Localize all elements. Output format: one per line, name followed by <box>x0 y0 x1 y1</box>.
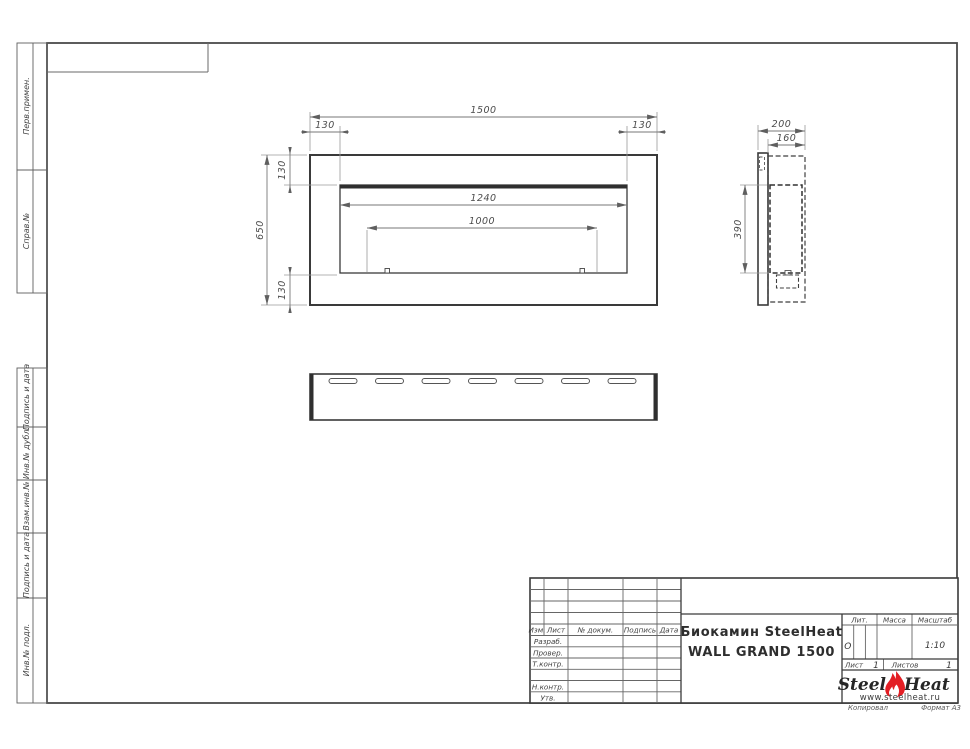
col-date: Дата <box>659 626 679 635</box>
col-sign: Подпись <box>624 626 656 635</box>
dim-text-200: 200 <box>772 119 792 130</box>
dim-text-650: 650 <box>255 220 266 240</box>
logo-word-heat: Heat <box>903 675 950 695</box>
row-tcontrol: Т.контр. <box>532 660 563 669</box>
extension-lines-side <box>740 125 805 273</box>
format-label: Формат А3 <box>921 704 961 712</box>
dim-text-130-left: 130 <box>315 120 335 131</box>
dim-text-130-top: 130 <box>277 160 288 180</box>
sheets-total: 1 <box>946 661 952 671</box>
side-view-firebox-hidden <box>770 185 802 273</box>
mass-label: Масса <box>883 616 906 625</box>
front-view-outline <box>310 155 657 305</box>
dim-text-1240: 1240 <box>470 193 496 204</box>
side-view <box>758 153 805 305</box>
side-view-front-frame <box>758 153 768 305</box>
margin-label-vzam-inv: Взам.инв.№ <box>22 481 31 530</box>
lit-label: Лит. <box>850 616 868 625</box>
drawing-sheet: Перв.примен. Справ.№ Подпись и дата Инв.… <box>0 0 970 749</box>
copied-label: Копировал <box>848 704 889 712</box>
burner-mount-left <box>385 269 390 274</box>
engineering-drawing: Перв.примен. Справ.№ Подпись и дата Инв.… <box>0 0 970 749</box>
side-view-burner-hidden <box>777 275 799 288</box>
margin-label-inv-dubl: Инв.№ дубл. <box>22 427 31 479</box>
scale-label: Масштаб <box>918 616 953 625</box>
top-left-stamp-box <box>47 43 208 72</box>
row-approved: Утв. <box>540 694 555 703</box>
row-checked: Провер. <box>533 648 563 657</box>
doc-title-line1: Биокамин SteelHeat <box>681 625 843 640</box>
scale-value: 1:10 <box>925 641 945 651</box>
margin-label-perv-primen: Перв.примен. <box>22 77 31 135</box>
lit-value: О <box>844 642 851 652</box>
bottom-view-left-edge <box>310 374 314 420</box>
sheet-number: 1 <box>873 661 879 671</box>
side-view-dimensions: 200 160 390 <box>733 119 805 273</box>
col-list: Лист <box>546 626 566 635</box>
dim-text-1500: 1500 <box>470 105 496 116</box>
doc-title-line2: WALL GRAND 1500 <box>688 645 835 660</box>
logo-word-steel: Steel <box>838 675 887 695</box>
sheets-label: Листов <box>891 661 919 670</box>
margin-label-podpis-data-1: Подпись и дата <box>22 364 31 430</box>
margin-label-podpis-data-2: Подпись и дата <box>22 532 31 598</box>
sheet-label: Лист <box>844 661 864 670</box>
margin-label-sprav-no: Справ.№ <box>22 213 31 249</box>
bottom-view <box>310 374 657 420</box>
front-view <box>310 155 657 305</box>
col-izm: Изм. <box>529 626 546 635</box>
side-view-hidden-body <box>768 156 805 302</box>
row-ncontrol: Н.контр. <box>532 682 564 691</box>
front-view-glass-edge <box>340 185 627 189</box>
bottom-view-right-edge <box>654 374 658 420</box>
margin-label-inv-podl: Инв.№ подл. <box>22 624 31 677</box>
dim-text-160: 160 <box>777 133 797 144</box>
dim-text-130-right: 130 <box>632 120 652 131</box>
dim-text-1000: 1000 <box>469 216 495 227</box>
logo-site-url: www.steelheat.ru <box>860 693 941 703</box>
row-developed: Разраб. <box>534 637 562 646</box>
dim-text-130-bottom: 130 <box>277 280 288 300</box>
title-block: Изм. Лист № докум. Подпись Дата Разраб. … <box>529 578 958 703</box>
dim-text-390: 390 <box>733 219 744 239</box>
burner-mount-right <box>580 269 585 274</box>
col-doc: № докум. <box>577 626 613 635</box>
